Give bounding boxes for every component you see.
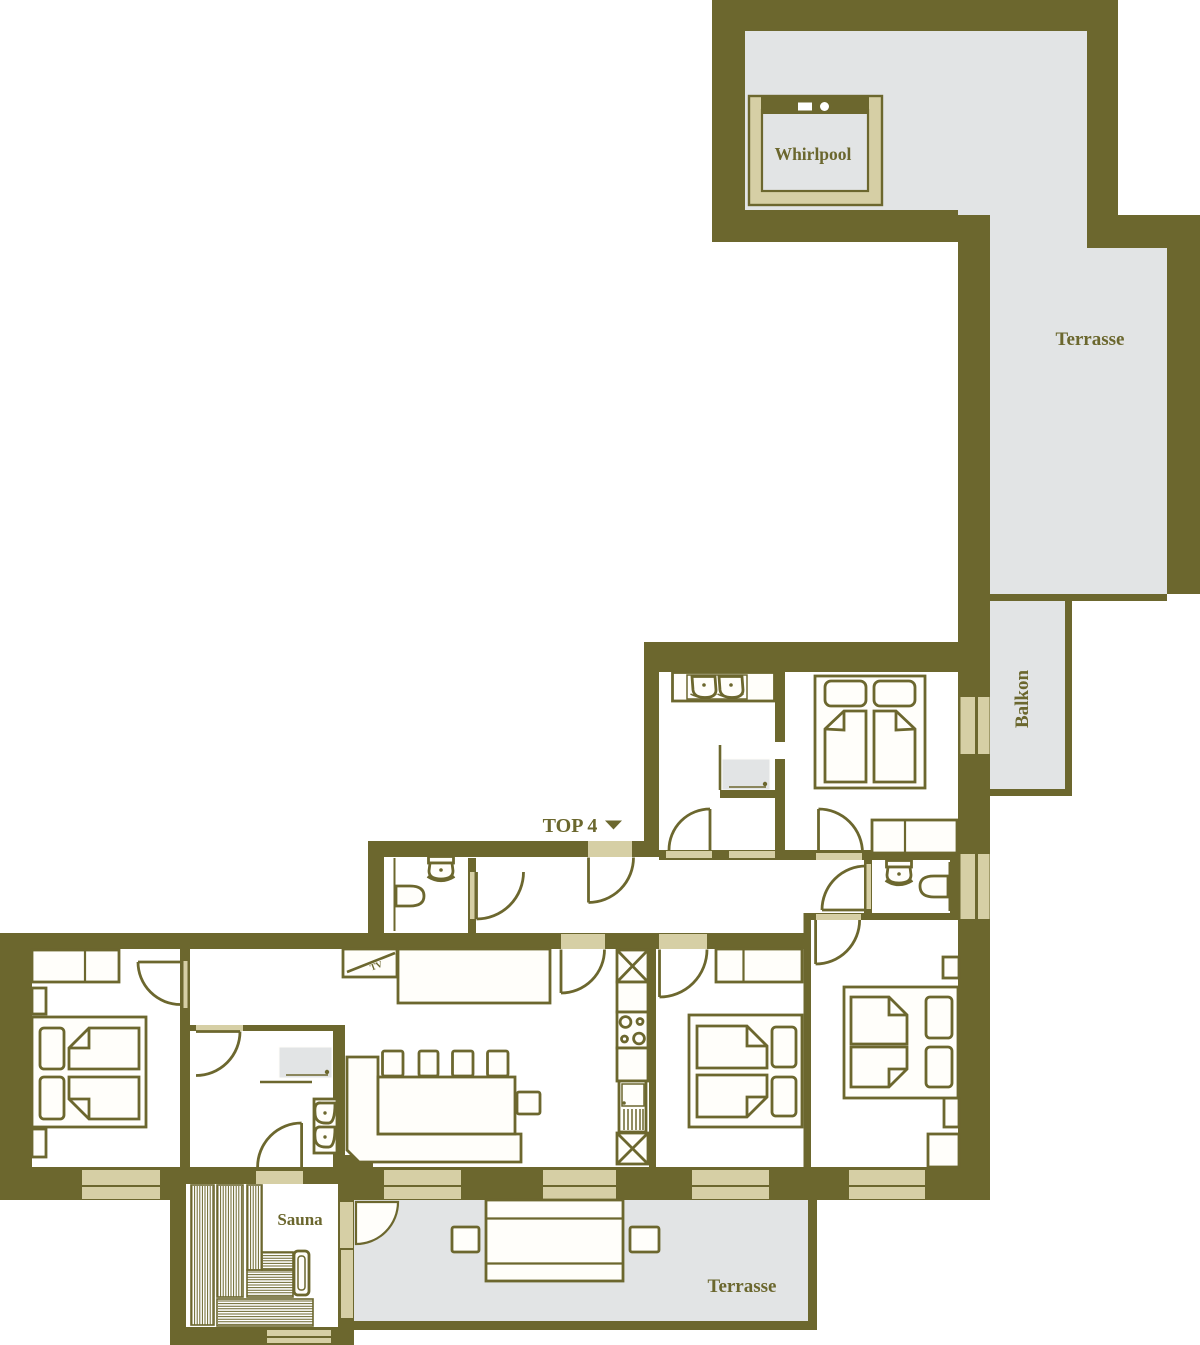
svg-text:Terrasse: Terrasse xyxy=(708,1276,777,1297)
svg-text:Whirlpool: Whirlpool xyxy=(775,144,852,164)
svg-text:Balkon: Balkon xyxy=(1012,670,1033,729)
svg-text:TOP 4: TOP 4 xyxy=(543,815,598,837)
svg-text:Terrasse: Terrasse xyxy=(1056,329,1125,350)
svg-text:Sauna: Sauna xyxy=(277,1210,323,1229)
